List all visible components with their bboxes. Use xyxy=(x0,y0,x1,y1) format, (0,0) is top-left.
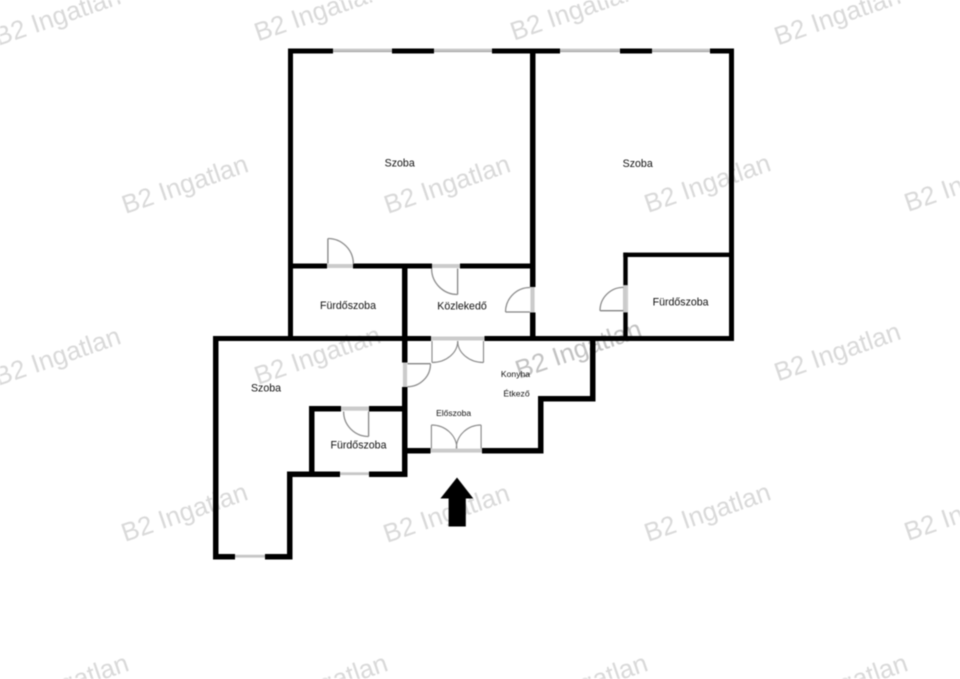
svg-text:B2 Ingatlan: B2 Ingatlan xyxy=(117,476,251,547)
svg-text:Szoba: Szoba xyxy=(251,383,281,395)
svg-text:B2 Ingatlan: B2 Ingatlan xyxy=(770,0,904,51)
svg-text:Szoba: Szoba xyxy=(385,158,415,170)
svg-text:Fürdőszoba: Fürdőszoba xyxy=(320,300,376,312)
svg-text:B2 Ingatlan: B2 Ingatlan xyxy=(770,316,904,387)
svg-text:B2 Ingatlan: B2 Ingatlan xyxy=(517,647,651,679)
svg-text:B2 Ingatlan: B2 Ingatlan xyxy=(0,647,132,679)
svg-text:B2 Ingatlan: B2 Ingatlan xyxy=(250,0,384,47)
svg-text:Szoba: Szoba xyxy=(623,158,653,170)
svg-text:B2 Ingatlan: B2 Ingatlan xyxy=(0,0,124,52)
svg-text:B2 Ingatlan: B2 Ingatlan xyxy=(506,0,640,46)
svg-text:B2 Ingatlan: B2 Ingatlan xyxy=(900,146,960,217)
svg-text:Előszoba: Előszoba xyxy=(436,408,471,418)
svg-text:B2 Ingatlan: B2 Ingatlan xyxy=(640,476,774,547)
svg-text:Étkező: Étkező xyxy=(503,388,529,398)
svg-text:B2 Ingatlan: B2 Ingatlan xyxy=(379,477,513,548)
svg-text:B2 Ingatlan: B2 Ingatlan xyxy=(777,647,911,679)
svg-text:B2 Ingatlan: B2 Ingatlan xyxy=(118,148,252,219)
svg-text:B2 Ingatlan: B2 Ingatlan xyxy=(250,319,384,390)
svg-text:Konyha: Konyha xyxy=(501,369,530,379)
svg-text:B2 Ingatlan: B2 Ingatlan xyxy=(640,147,774,218)
svg-text:Fürdőszoba: Fürdőszoba xyxy=(331,440,387,452)
svg-text:B2 Ingatlan: B2 Ingatlan xyxy=(900,475,960,546)
svg-text:Közlekedő: Közlekedő xyxy=(437,301,487,313)
svg-text:B2 Ingatlan: B2 Ingatlan xyxy=(0,320,124,391)
svg-text:B2 Ingatlan: B2 Ingatlan xyxy=(257,647,391,679)
svg-text:Fürdőszoba: Fürdőszoba xyxy=(653,297,709,309)
